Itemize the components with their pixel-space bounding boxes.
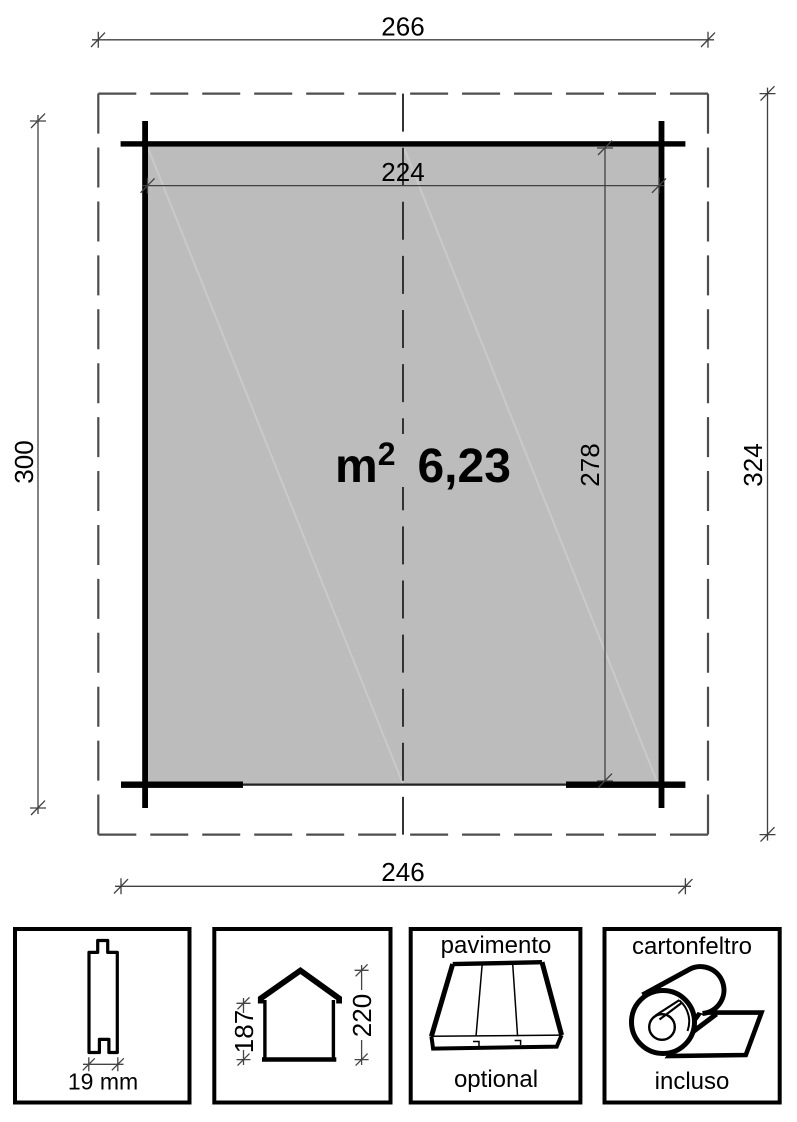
svg-text:187: 187 xyxy=(229,1010,259,1053)
svg-text:incluso: incluso xyxy=(655,1068,730,1095)
svg-text:19 mm: 19 mm xyxy=(68,1069,138,1095)
svg-text:246: 246 xyxy=(381,857,424,887)
svg-text:300: 300 xyxy=(9,440,39,483)
svg-text:optional: optional xyxy=(454,1066,538,1093)
svg-text:324: 324 xyxy=(738,443,768,486)
svg-text:278: 278 xyxy=(575,443,605,486)
svg-text:224: 224 xyxy=(381,157,424,187)
svg-text:266: 266 xyxy=(381,11,424,41)
svg-text:cartonfeltro: cartonfeltro xyxy=(632,933,752,960)
svg-text:m26,23: m26,23 xyxy=(335,436,511,493)
svg-text:220: 220 xyxy=(347,994,377,1037)
svg-text:pavimento: pavimento xyxy=(441,932,552,959)
